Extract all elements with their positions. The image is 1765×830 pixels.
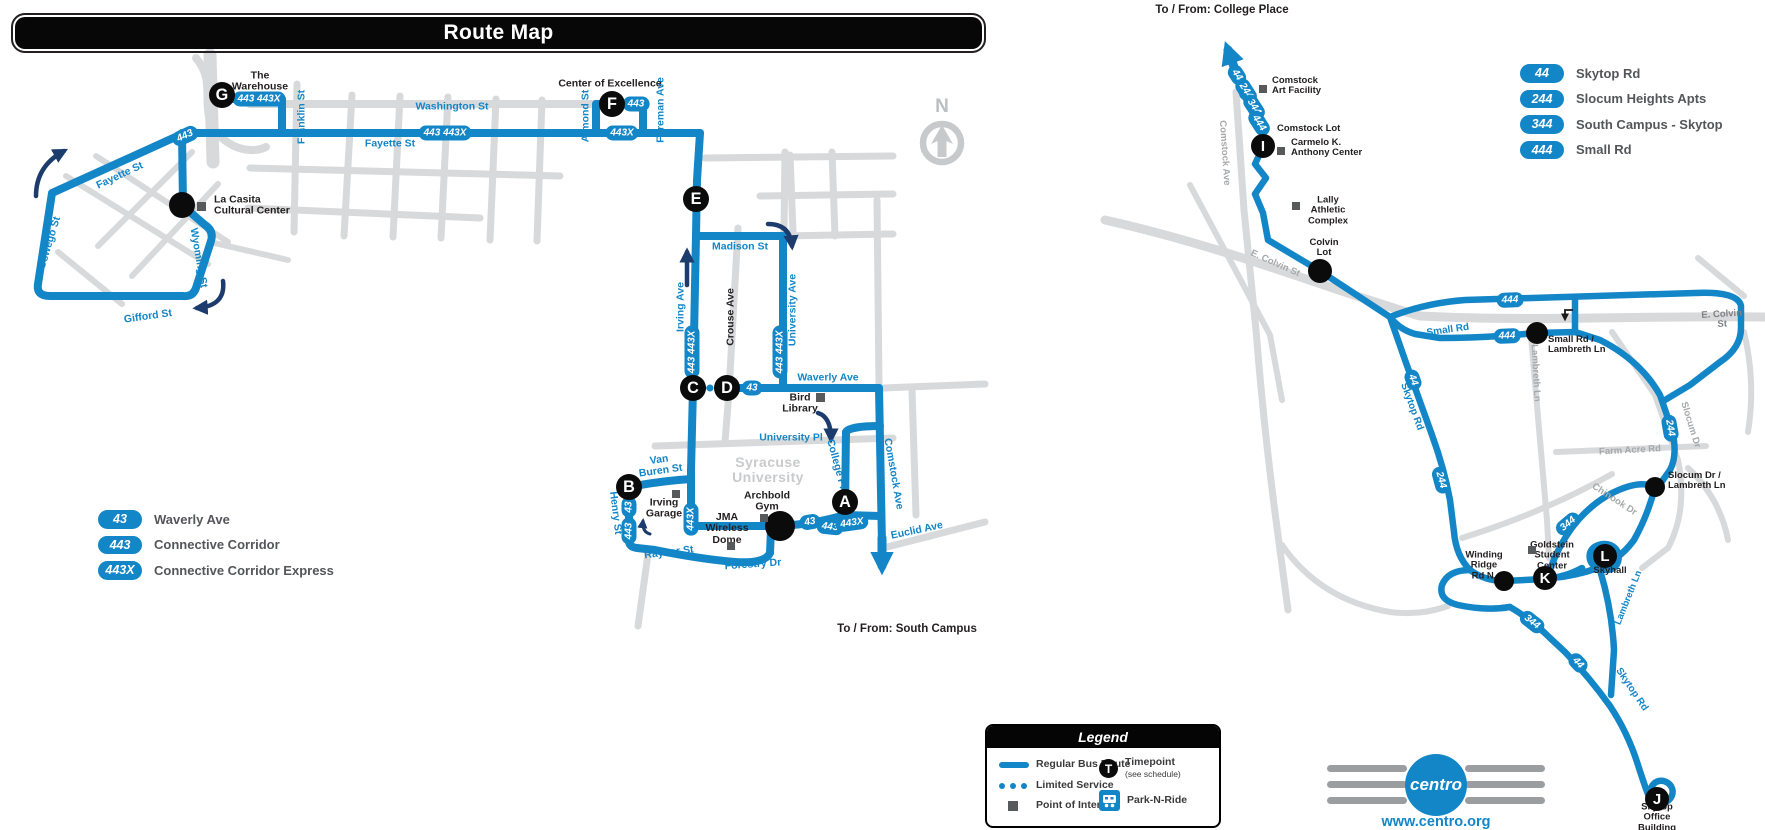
compass-icon [916, 118, 968, 170]
poi-la-casita [197, 202, 206, 211]
timepoint-e: E [683, 186, 709, 212]
route-badge-444: 444 [1520, 141, 1564, 160]
timepoint-l: L [1593, 544, 1617, 568]
legend-limited-service: Limited Service [999, 780, 1114, 792]
timepoint-j: J [1645, 787, 1669, 811]
park-n-ride-icon [1099, 790, 1120, 811]
logo-wing [1465, 765, 1545, 772]
route-badge: 443 443X [233, 92, 286, 107]
route-badge: 444 [1493, 328, 1520, 344]
route-badge-344: 344 [1520, 115, 1564, 134]
poi-irving-garage [672, 490, 680, 498]
title-bar: Route Map [11, 13, 986, 53]
page-title: Route Map [443, 21, 553, 45]
limited-service-icon [999, 783, 1029, 789]
legend-timepoint: T Timepoint (see schedule) [1099, 757, 1181, 780]
map-artwork [0, 0, 1765, 830]
regular-route-icon [999, 762, 1029, 768]
street-waverly: Waverly Ave [797, 372, 858, 383]
route-badge-443: 443 [98, 536, 142, 555]
poi-label-slocum-lambreth: Slocum Dr / Lambreth Ln [1668, 471, 1726, 492]
legend-label: Waverly Ave [154, 512, 230, 527]
centro-logo-circle: centro [1405, 754, 1467, 816]
poi-label-colvin-lot: Colvin Lot [1309, 238, 1338, 259]
route-badge: 443X [605, 126, 638, 141]
small-rd-stop [1526, 322, 1548, 344]
legend-row-43: 43 Waverly Ave [98, 510, 334, 529]
poi-label-comstock-art: Comstock Art Facility [1272, 76, 1321, 97]
legend-label: Connective Corridor [154, 537, 280, 552]
colvin-lot-stop [1308, 259, 1332, 283]
street-university-pl: University Pl [759, 432, 823, 443]
poi-label-comstock-lot: Comstock Lot [1277, 124, 1340, 134]
street-university-ave: University Ave [787, 274, 798, 346]
timepoint-i: I [1251, 134, 1275, 158]
route-badge: 443 443X [773, 326, 788, 379]
route-badge: 443 [623, 97, 650, 112]
timepoint-f: F [599, 91, 625, 117]
timepoint-sublabel: (see schedule) [1125, 769, 1181, 779]
centro-logo-text: centro [1410, 775, 1462, 795]
timepoint-g: G [209, 82, 235, 108]
route-badge: 443X [684, 502, 699, 535]
street-almond: Almond St [580, 90, 591, 143]
street-franklin: Franklin St [296, 90, 307, 144]
timepoint-d: D [714, 375, 740, 401]
centro-logo: centro [1327, 750, 1545, 822]
poi-bird-library [816, 393, 825, 402]
poi-label-small-lambreth: Small Rd / Lambreth Ln [1548, 335, 1606, 356]
route-badge-244: 244 [1520, 90, 1564, 109]
route-badge-44: 44 [1520, 64, 1564, 83]
street-lambreth-gray: Lambreth Ln [1528, 344, 1541, 402]
poi-comstock-art [1259, 85, 1267, 93]
timepoint-c: C [680, 375, 706, 401]
street-washington: Washington St [415, 101, 488, 112]
route-badge: 444 [1496, 292, 1523, 308]
timepoint-label: Timepoint [1125, 756, 1175, 768]
map-legend-box: Legend Regular Bus Route Limited Service… [985, 724, 1221, 828]
poi-label-archbold: Archbold Gym [744, 491, 790, 514]
route-badge: 443 443X [419, 126, 472, 141]
street-madison: Madison St [712, 241, 768, 252]
website-link[interactable]: www.centro.org [1327, 814, 1545, 830]
legend-row-44: 44 Skytop Rd [1520, 64, 1723, 83]
route-badge-43: 43 [98, 510, 142, 529]
legend-row-443x: 443X Connective Corridor Express [98, 561, 334, 580]
legend-label: Connective Corridor Express [154, 563, 334, 578]
legend-park-n-ride: Park-N-Ride [1099, 790, 1187, 811]
route-badge: 443 [622, 518, 637, 545]
poi-label-lally: Lally Athletic Complex [1308, 196, 1348, 227]
legend-label: Slocum Heights Apts [1576, 91, 1706, 106]
point-of-interest-icon [1008, 801, 1018, 811]
winding-ridge-stop [1494, 571, 1514, 591]
timepoint-k: K [1533, 566, 1557, 590]
legend-text: Park-N-Ride [1127, 795, 1187, 807]
route-badge-443x: 443X [98, 561, 142, 580]
north-label: N [916, 96, 968, 118]
route-badge: 43 [741, 381, 762, 396]
street-fayette-main: Fayette St [365, 138, 415, 149]
legend-row-443: 443 Connective Corridor [98, 536, 334, 555]
legend-label: Skytop Rd [1576, 66, 1640, 81]
legend-row-444: 444 Small Rd [1520, 141, 1723, 160]
campus-syracuse-university: Syracuse University [732, 455, 804, 485]
la-casita-stop [169, 192, 195, 218]
legend-box-title: Legend [987, 726, 1219, 748]
poi-label-carmelo: Carmelo K. Anthony Center [1291, 138, 1362, 159]
poi-label-warehouse: The Warehouse [232, 71, 288, 94]
poi-jma [727, 542, 735, 550]
direction-arrows [36, 151, 831, 534]
poi-label-goldstein: Goldstein Student Center [1530, 541, 1574, 572]
north-compass: N [916, 96, 968, 175]
poi-lally [1292, 202, 1300, 210]
route-legend-left: 43 Waverly Ave 443 Connective Corridor 4… [98, 510, 334, 580]
legend-row-344: 344 South Campus - Skytop [1520, 115, 1723, 134]
street-e-colvin-e: E. Colvin St [1700, 309, 1744, 332]
legend-label: Small Rd [1576, 142, 1632, 157]
poi-label-center-of-excellence: Center of Excellence [558, 78, 661, 89]
legend-label: South Campus - Skytop [1576, 117, 1723, 132]
archbold-stop [765, 511, 795, 541]
note-college-place: To / From: College Place [1155, 4, 1288, 16]
street-irving: Irving Ave [675, 282, 686, 332]
legend-text: Timepoint (see schedule) [1125, 757, 1181, 780]
poi-archbold [760, 514, 768, 522]
poi-label-irving-garage: Irving Garage [646, 498, 682, 521]
poi-goldstein [1528, 546, 1536, 554]
note-south-campus: To / From: South Campus [837, 623, 977, 635]
poi-label-bird-library: Bird Library [782, 393, 818, 416]
slocum-lambreth-stop [1645, 477, 1665, 497]
poi-label-la-casita: La Casita Cultural Center [214, 195, 290, 218]
logo-wing [1465, 797, 1545, 804]
poi-carmelo [1277, 147, 1285, 155]
legend-row-244: 244 Slocum Heights Apts [1520, 90, 1723, 109]
route-badge: 443 443X [685, 326, 700, 379]
route-map-page: Route Map N 43 Waverly Ave 443 Connectiv… [0, 0, 1765, 830]
logo-wing [1465, 781, 1545, 788]
timepoint-icon: T [1099, 759, 1118, 778]
logo-wing [1327, 797, 1407, 804]
route-legend-right: 44 Skytop Rd 244 Slocum Heights Apts 344… [1520, 64, 1723, 159]
poi-label-jma: JMA Wireless Dome [705, 512, 748, 546]
timepoint-a: A [832, 489, 858, 515]
street-crouse: Crouse Ave [725, 288, 736, 346]
poi-label-skyhall: Skyhall [1593, 566, 1626, 576]
logo-wing [1327, 765, 1407, 772]
logo-wing [1327, 781, 1407, 788]
timepoint-b: B [616, 474, 642, 500]
gray-roads-right [1105, 92, 1765, 613]
